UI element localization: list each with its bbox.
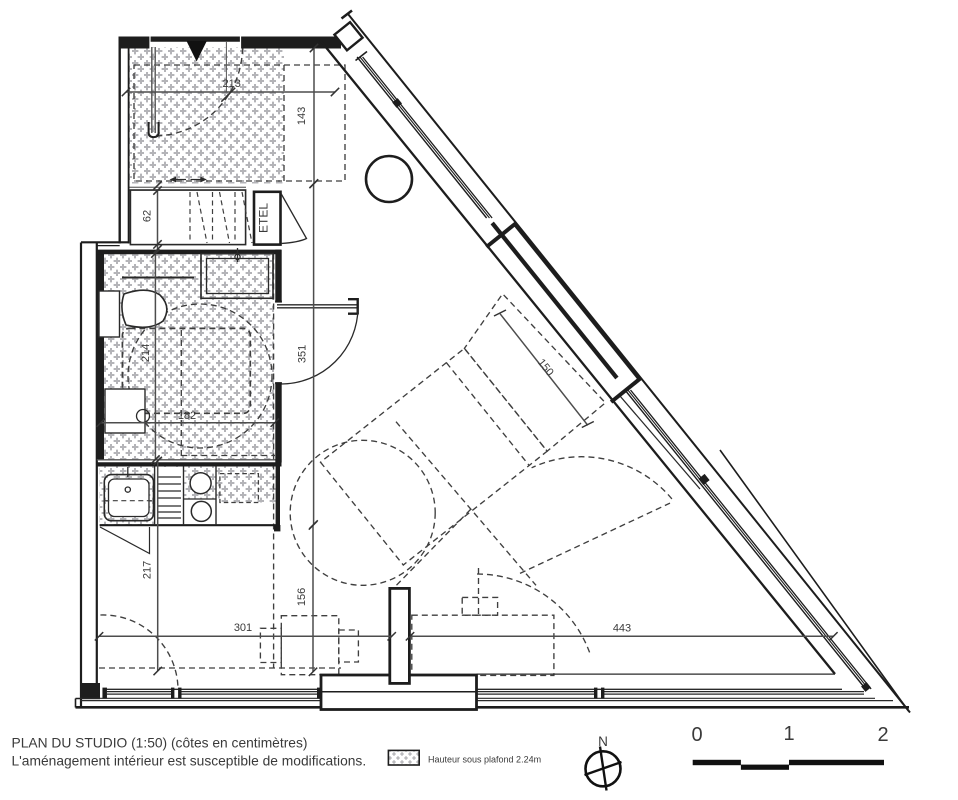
svg-text:Hauteur sous plafond 2.24m: Hauteur sous plafond 2.24m xyxy=(428,755,541,765)
svg-text:0: 0 xyxy=(691,724,702,746)
svg-text:217: 217 xyxy=(142,561,154,579)
svg-text:PLAN DU STUDIO (1:50) (côtes e: PLAN DU STUDIO (1:50) (côtes en centimèt… xyxy=(12,736,308,751)
svg-text:182: 182 xyxy=(178,410,196,422)
svg-text:N: N xyxy=(598,734,608,749)
svg-text:443: 443 xyxy=(613,622,631,634)
svg-text:2: 2 xyxy=(877,724,888,746)
svg-text:ETEL: ETEL xyxy=(257,203,271,233)
svg-text:351: 351 xyxy=(297,345,309,363)
svg-text:62: 62 xyxy=(142,210,154,222)
svg-text:301: 301 xyxy=(234,622,252,634)
svg-text:1: 1 xyxy=(783,723,794,745)
svg-text:214: 214 xyxy=(140,344,152,362)
svg-text:143: 143 xyxy=(296,107,308,125)
svg-text:213: 213 xyxy=(223,78,241,90)
svg-text:156: 156 xyxy=(296,588,308,606)
svg-text:L'aménagement intérieur est su: L'aménagement intérieur est susceptible … xyxy=(12,754,367,769)
